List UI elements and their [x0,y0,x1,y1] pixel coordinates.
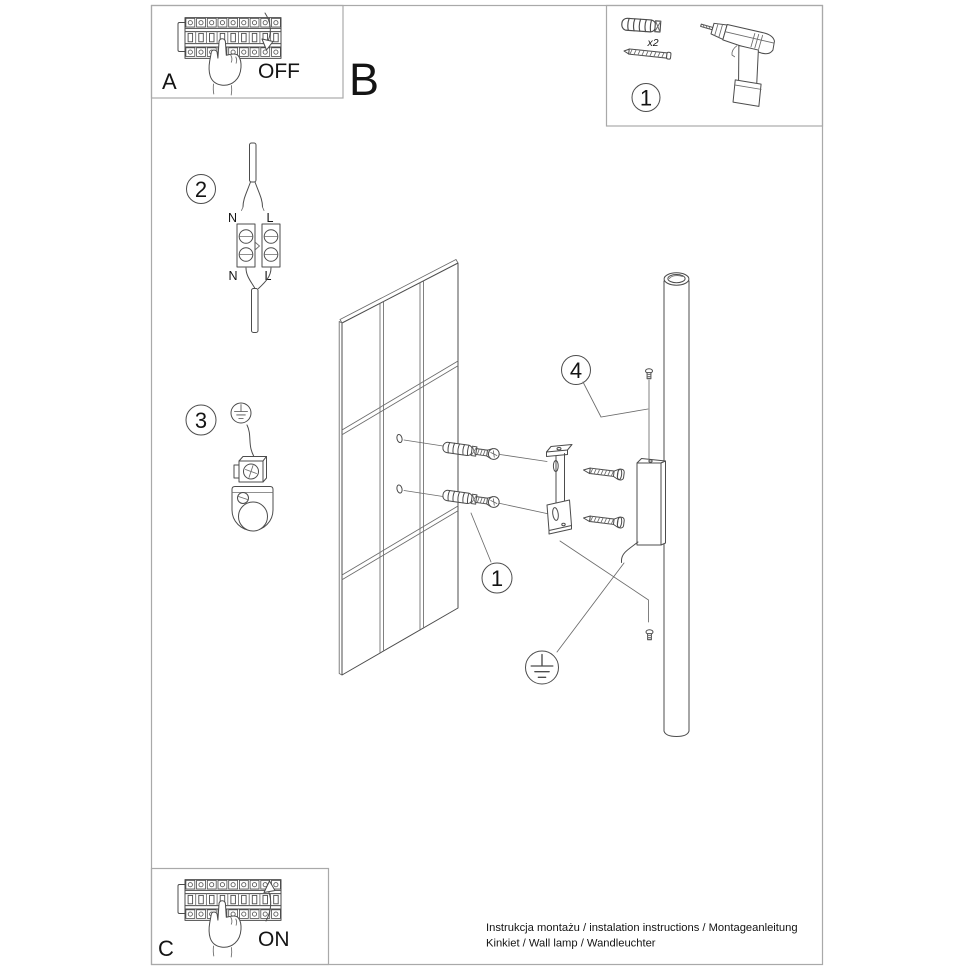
circuit-breaker-icon-c [178,880,281,921]
quantity-label: x2 [646,37,658,49]
screw-icon [624,48,671,60]
leader-line-earth [557,563,624,652]
step-1-badge: 1 [640,86,652,111]
panel-a: A OFF [152,6,344,99]
instruction-sheet: A OFF B x2 1 2 N [0,0,970,970]
wall-plug-icon [621,18,660,33]
step-4-callout: 4 [562,356,649,418]
step-3-badge: 3 [195,408,207,433]
mounting-screw-1 [583,465,625,481]
diagram-svg: A OFF B x2 1 2 N [0,0,970,970]
circuit-breaker-icon [178,18,281,59]
parts-panel: x2 1 [607,6,823,127]
neutral-label-top: N [228,211,237,225]
live-label-top: L [267,211,274,225]
mounting-screw-2 [583,513,625,529]
leader-line-step4 [583,382,648,417]
earth-symbol-small-glyph [234,405,247,419]
panel-a-label: A [162,69,177,94]
wall-bracket-icon [547,445,573,535]
step-2-badge: 2 [195,177,207,202]
lamp-housing-icon [637,459,666,546]
power-on-label: ON [258,928,290,951]
power-off-label: OFF [258,60,300,83]
panel-c: C ON [152,869,329,965]
step-3-grounding: 3 [186,403,273,531]
neutral-label-bottom: N [228,269,237,283]
panel-c-label: C [158,936,174,961]
set-screw-bottom [560,541,653,640]
protective-earth-badge [526,563,625,684]
footer-line-2: Kinkiet / Wall lamp / Wandleuchter [486,938,656,950]
mounting-plate-icon [232,487,273,532]
lamp-tube-icon [664,273,689,737]
drill-icon [683,16,779,110]
ground-wire-icon [247,425,255,458]
step-4-badge: 4 [570,358,582,383]
set-screw-top [646,369,653,459]
footer: Instrukcja montażu / instalation instruc… [486,922,798,950]
mains-cable-icon [242,143,265,211]
ground-terminal-icon [234,457,267,483]
footer-line-1: Instrukcja montażu / instalation instruc… [486,922,798,934]
tiled-wall-icon [339,260,458,676]
step-2-wiring: 2 N L N L [187,143,281,333]
section-b-label: B [349,54,379,105]
terminal-block-icon [237,224,280,267]
power-cord-icon [622,542,639,563]
leader-line-step1 [471,513,491,562]
step-1-main-badge: 1 [491,566,503,591]
